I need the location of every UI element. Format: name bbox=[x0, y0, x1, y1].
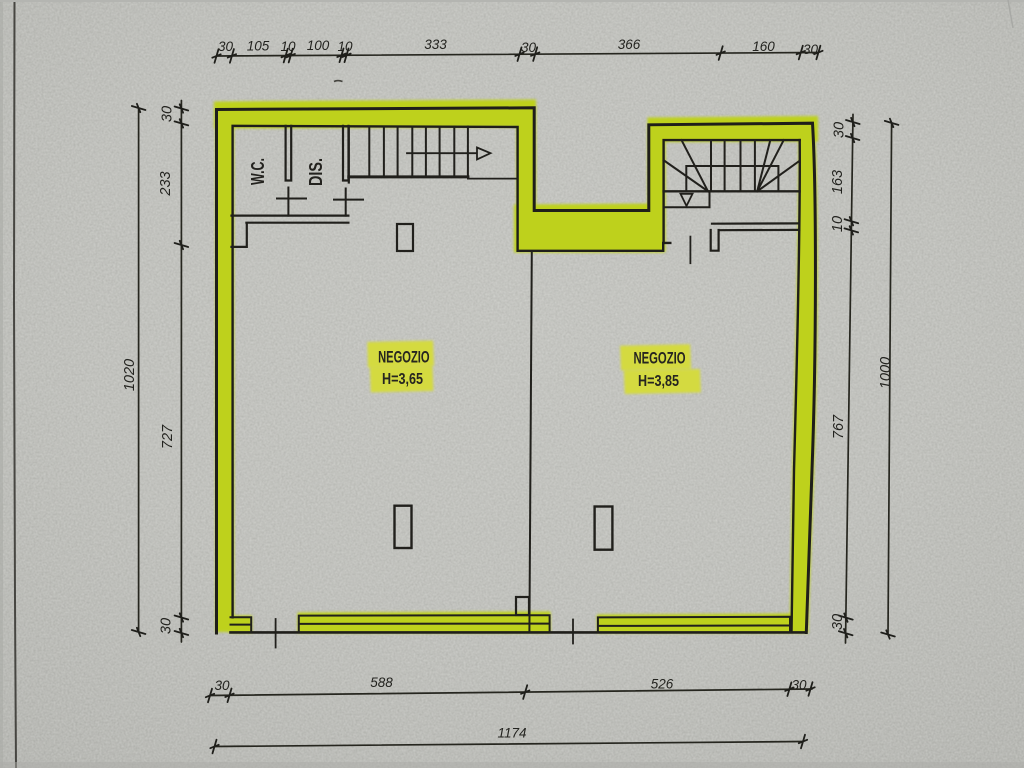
svg-text:366: 366 bbox=[618, 37, 641, 52]
svg-text:1000: 1000 bbox=[878, 357, 894, 389]
svg-text:333: 333 bbox=[424, 37, 447, 52]
svg-text:W.C.: W.C. bbox=[248, 158, 268, 185]
svg-text:10: 10 bbox=[337, 39, 353, 54]
svg-text:1174: 1174 bbox=[497, 726, 526, 741]
svg-text:233: 233 bbox=[158, 171, 174, 196]
svg-text:767: 767 bbox=[831, 414, 847, 439]
svg-text:H=3,65: H=3,65 bbox=[382, 371, 423, 388]
svg-text:105: 105 bbox=[247, 39, 270, 54]
svg-text:526: 526 bbox=[651, 677, 674, 692]
svg-text:727: 727 bbox=[160, 424, 176, 449]
svg-text:DIS.: DIS. bbox=[306, 158, 326, 186]
svg-text:163: 163 bbox=[830, 170, 846, 194]
svg-text:30: 30 bbox=[832, 122, 848, 138]
svg-text:30: 30 bbox=[830, 614, 846, 630]
svg-text:30: 30 bbox=[521, 40, 537, 55]
svg-text:1020: 1020 bbox=[122, 359, 138, 391]
svg-text:NEGOZIO: NEGOZIO bbox=[378, 349, 430, 367]
svg-text:30: 30 bbox=[214, 678, 230, 693]
svg-text:H=3,85: H=3,85 bbox=[638, 373, 679, 390]
svg-text:30: 30 bbox=[160, 106, 176, 122]
svg-text:10: 10 bbox=[280, 39, 296, 54]
svg-text:30: 30 bbox=[791, 678, 807, 693]
svg-text:NEGOZIO: NEGOZIO bbox=[634, 350, 686, 368]
svg-text:30: 30 bbox=[218, 39, 234, 54]
svg-text:160: 160 bbox=[752, 39, 775, 54]
svg-text:30: 30 bbox=[803, 42, 819, 57]
svg-text:30: 30 bbox=[159, 618, 175, 634]
svg-text:10: 10 bbox=[830, 216, 846, 232]
svg-text:100: 100 bbox=[307, 38, 330, 53]
svg-text:588: 588 bbox=[370, 675, 393, 690]
